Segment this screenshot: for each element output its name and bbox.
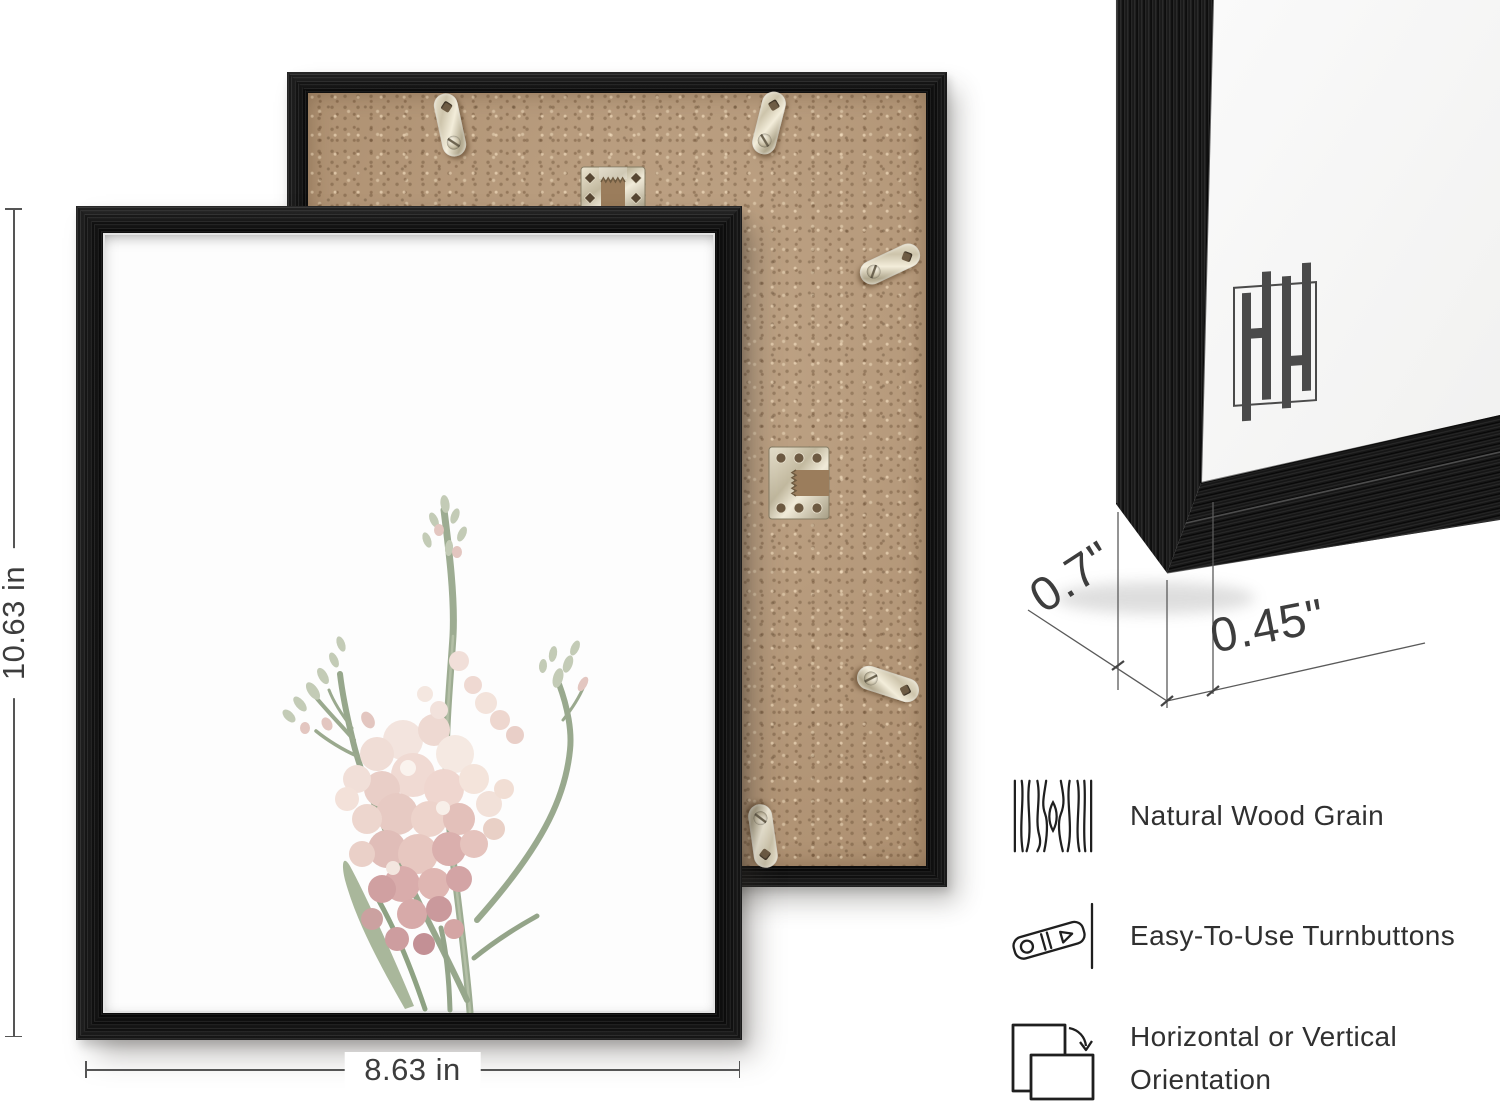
front-frame-rail-right: [715, 206, 742, 1040]
height-dimension: 10.63 in: [0, 208, 28, 1037]
front-frame-rail-bottom: [76, 1013, 742, 1040]
turnbutton: [856, 240, 924, 289]
turnbutton-icon: [1005, 898, 1100, 974]
feature-label: Natural Wood Grain: [1130, 794, 1384, 837]
front-frame-rail-left: [76, 206, 103, 1040]
orientation-icon: [1005, 1015, 1100, 1101]
width-dimension: 8.63 in: [85, 1056, 740, 1084]
back-frame-rail-right: [926, 72, 947, 887]
feature-wood-grain: Natural Wood Grain: [1005, 778, 1384, 854]
turnbutton: [747, 803, 780, 870]
wood-grain-icon: [1005, 778, 1100, 854]
sawtooth-hanger-landscape: [768, 446, 830, 520]
brand-logo-text: HH: [0, 0, 1, 1]
product-image: 0.7" 0.45" HH 10.63 in 8.63 in: [0, 0, 1500, 1110]
front-frame-rail-top: [76, 206, 742, 233]
height-dimension-label: 10.63 in: [0, 547, 32, 697]
feature-turnbuttons: Easy-To-Use Turnbuttons: [1005, 898, 1455, 974]
turnbutton: [750, 89, 789, 157]
art-print: [103, 233, 715, 1013]
flower-art: [253, 488, 648, 1013]
feature-label: Horizontal or Vertical Orientation: [1130, 1015, 1475, 1102]
frame-depth-side: [1116, 0, 1213, 573]
turnbutton: [432, 91, 469, 159]
front-frame: [76, 206, 742, 1040]
back-frame-rail-top: [287, 72, 947, 93]
feature-label: Easy-To-Use Turnbuttons: [1130, 914, 1455, 957]
feature-orientation: Horizontal or Vertical Orientation: [1005, 1015, 1475, 1102]
width-dimension-label: 8.63 in: [344, 1052, 481, 1088]
turnbutton: [854, 663, 922, 706]
